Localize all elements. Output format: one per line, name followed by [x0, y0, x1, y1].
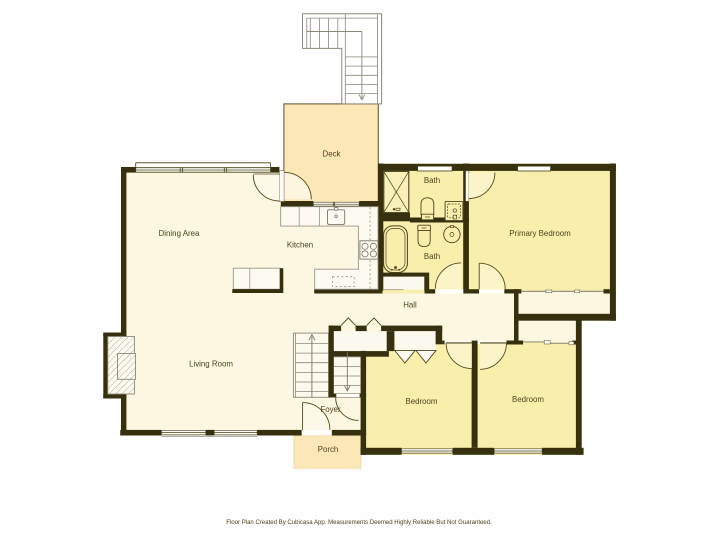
svg-text:Porch: Porch — [318, 445, 339, 454]
svg-text:Deck: Deck — [323, 149, 341, 158]
svg-text:Hall: Hall — [403, 301, 417, 310]
svg-text:Bath: Bath — [424, 252, 440, 261]
svg-text:Bedroom: Bedroom — [405, 397, 437, 406]
svg-text:Living Room: Living Room — [189, 360, 233, 369]
svg-text:Dining Area: Dining Area — [159, 229, 200, 238]
svg-text:Floor Plan Created By Cubicasa: Floor Plan Created By Cubicasa App. Meas… — [226, 520, 492, 526]
svg-text:Bath: Bath — [424, 176, 440, 185]
svg-text:Primary Bedroom: Primary Bedroom — [509, 229, 571, 238]
svg-text:Bedroom: Bedroom — [512, 395, 544, 404]
svg-text:Kitchen: Kitchen — [287, 241, 313, 250]
svg-text:Foyer: Foyer — [320, 405, 341, 414]
